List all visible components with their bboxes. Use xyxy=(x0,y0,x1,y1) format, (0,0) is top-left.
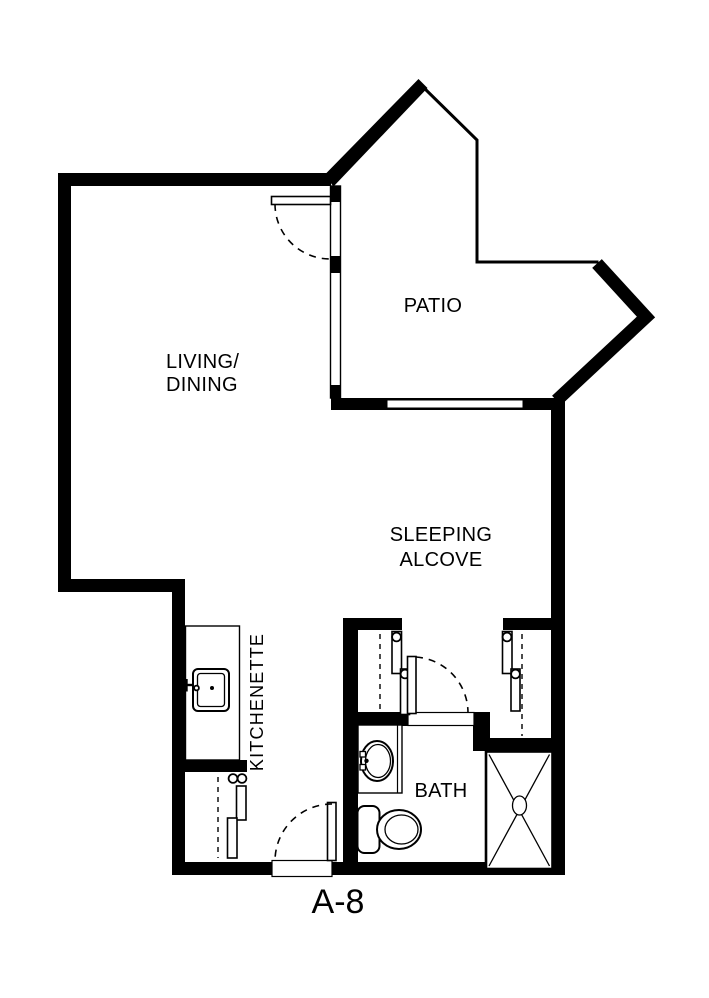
patio-window-wall xyxy=(331,186,341,398)
sliding-panel xyxy=(228,818,238,858)
kitchen-faucet-knob xyxy=(194,686,199,691)
door-handle-icon xyxy=(238,774,247,783)
unit-label: A-8 xyxy=(312,883,365,921)
wall-step xyxy=(58,579,185,592)
patio-door-arc xyxy=(275,204,330,259)
patio-wall-seg-mid xyxy=(331,256,341,273)
bath-faucet-b xyxy=(360,765,366,771)
patio-window xyxy=(387,400,523,408)
patio-door-leaf xyxy=(272,197,331,205)
entry-threshold xyxy=(272,861,332,877)
entry-door-leaf xyxy=(328,803,337,861)
wall-bath-left xyxy=(343,618,358,862)
wall-shower-top xyxy=(477,738,565,751)
bath-faucet-a xyxy=(360,752,366,758)
wall-patio-point xyxy=(557,264,647,401)
entry-door-arc xyxy=(275,804,332,861)
floor-plan-drawing: LIVING/ DINING PATIO SLEEPING ALCOVE KIT… xyxy=(0,0,709,998)
bath-threshold xyxy=(408,713,474,726)
wall-kitchen-stub xyxy=(185,760,247,772)
kitchenette-label: KITCHENETTE xyxy=(247,633,267,771)
shower-drain xyxy=(513,796,527,815)
door-handle-icon xyxy=(392,633,401,642)
wall-patio-diagonal xyxy=(325,79,428,187)
shower-icon xyxy=(486,752,553,870)
sliding-panel xyxy=(237,786,247,820)
door-handle-icon xyxy=(503,633,512,642)
wall-top xyxy=(58,173,331,186)
patio-wall-seg-top xyxy=(331,186,341,202)
living-dining-label-line1: LIVING/ xyxy=(166,351,239,373)
wall-bath-hall xyxy=(343,712,408,726)
floor-plan-page: LIVING/ DINING PATIO SLEEPING ALCOVE KIT… xyxy=(0,0,709,998)
toilet-bowl-icon xyxy=(377,810,421,849)
bath-faucet-knob xyxy=(364,759,368,763)
wall-left-lower xyxy=(172,579,185,875)
sleeping-alcove-label-line1: SLEEPING xyxy=(390,524,492,546)
kitchenette-fixtures xyxy=(182,626,240,760)
patio-label: PATIO xyxy=(404,295,463,317)
wall-closet-right-top xyxy=(503,618,565,630)
wall-left xyxy=(58,173,71,592)
kitchen-sink-drain xyxy=(210,686,214,690)
bath-door-arc xyxy=(416,657,468,713)
bath-door-leaf xyxy=(408,657,417,714)
patio-wall-seg-bottom xyxy=(331,385,341,398)
wall-closet-left-top xyxy=(343,618,402,630)
living-dining-label-line2: DINING xyxy=(166,374,238,396)
patio-wall-strip xyxy=(331,186,341,398)
door-handle-icon xyxy=(511,670,520,679)
bath-label: BATH xyxy=(414,780,467,802)
sleeping-alcove-label-line2: ALCOVE xyxy=(400,549,483,571)
door-handle-icon xyxy=(229,774,238,783)
patio-railing xyxy=(422,86,599,263)
